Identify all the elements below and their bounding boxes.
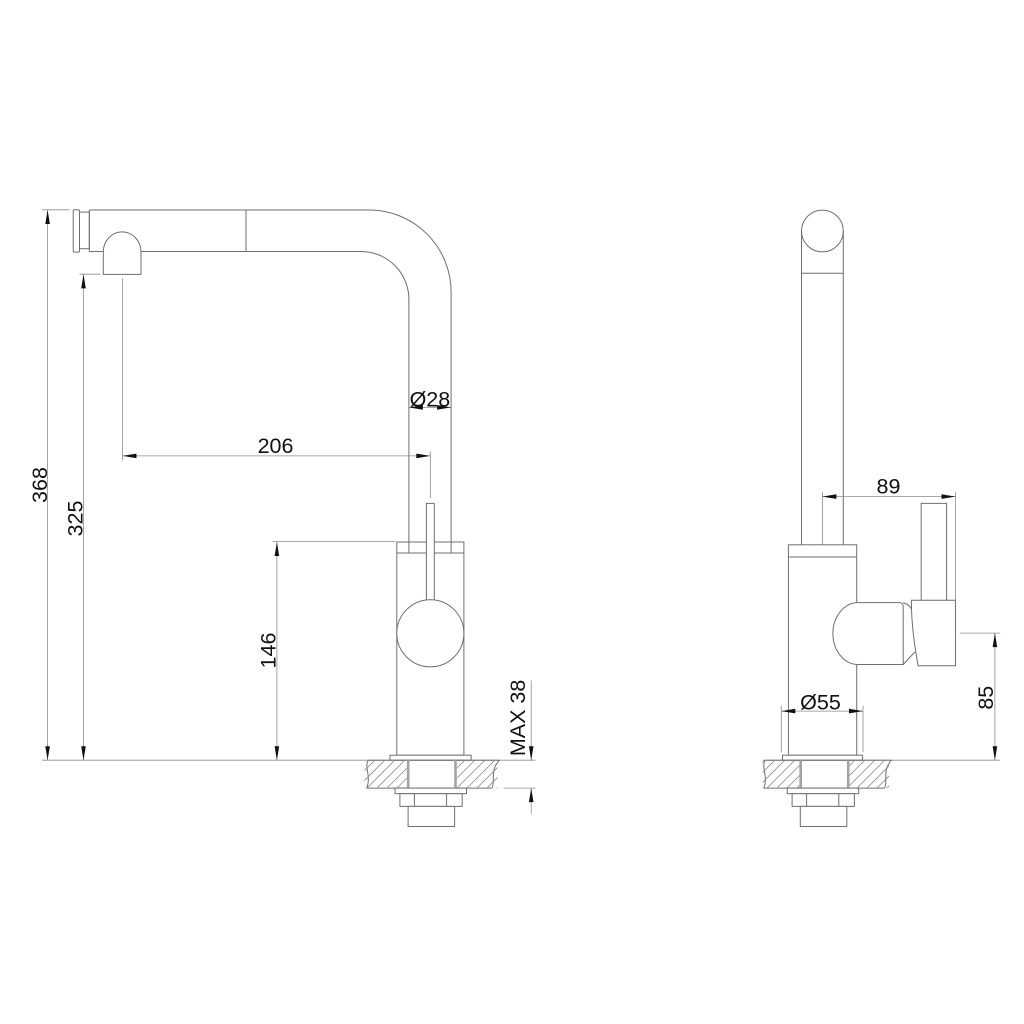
svg-text:325: 325 — [63, 501, 87, 537]
svg-text:89: 89 — [877, 475, 901, 499]
svg-text:Ø55: Ø55 — [800, 691, 841, 715]
svg-text:206: 206 — [258, 434, 294, 458]
svg-text:146: 146 — [257, 633, 281, 669]
svg-text:Ø28: Ø28 — [410, 387, 451, 411]
svg-text:MAX 38: MAX 38 — [506, 680, 530, 757]
svg-text:85: 85 — [974, 686, 998, 710]
svg-text:368: 368 — [28, 467, 52, 503]
